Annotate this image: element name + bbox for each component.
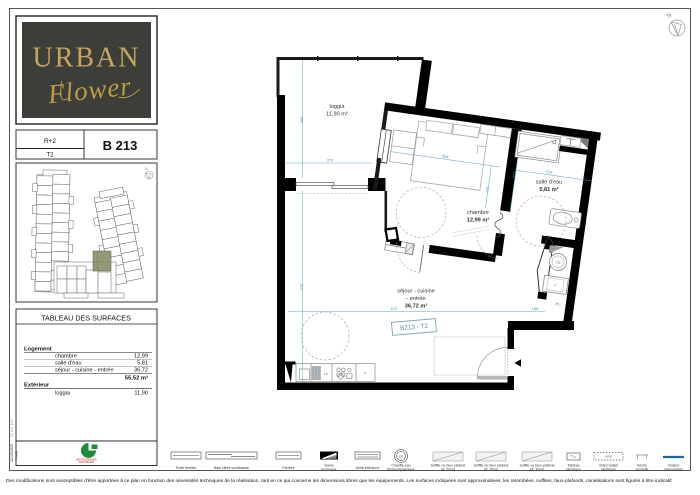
svg-text:salle d'eau: salle d'eau [55, 361, 82, 367]
svg-text:IMMOBILIER: IMMOBILIER [79, 460, 94, 464]
svg-text:11,90: 11,90 [134, 391, 148, 397]
svg-text:LV: LV [324, 371, 329, 376]
svg-text:- entrée: - entrée [406, 296, 425, 302]
svg-text:R+2: R+2 [44, 138, 56, 145]
svg-text:loggia: loggia [55, 391, 71, 397]
svg-text:T2: T2 [46, 153, 54, 159]
svg-text:579: 579 [299, 283, 304, 290]
svg-text:URBAN: URBAN [32, 43, 140, 74]
svg-text:Baie vitrée coulissante: Baie vitrée coulissante [214, 466, 249, 470]
svg-text:11,90 m²: 11,90 m² [326, 112, 348, 118]
svg-text:électrique: électrique [601, 468, 616, 472]
svg-text:176: 176 [485, 186, 490, 192]
svg-text:Ht. 25cm: Ht. 25cm [484, 468, 498, 472]
svg-text:22/10/2025: 22/10/2025 [10, 444, 14, 462]
svg-text:12,99: 12,99 [134, 354, 148, 360]
svg-text:Ht. 20cm: Ht. 20cm [441, 468, 455, 472]
svg-text:Ht. 30cm: Ht. 30cm [530, 468, 544, 472]
svg-text:PL: PL [555, 302, 560, 307]
svg-text:TABLEAU DES SURFACES: TABLEAU DES SURFACES [41, 314, 131, 323]
svg-text:188: 188 [532, 306, 539, 311]
svg-text:370: 370 [327, 158, 334, 163]
svg-text:V.R.E: V.R.E [605, 455, 612, 459]
svg-text:technique: technique [321, 468, 336, 472]
svg-text:55,52 m²: 55,52 m² [125, 375, 148, 382]
svg-text:CE: CE [555, 260, 561, 265]
svg-text:séjour - cuisine: séjour - cuisine [397, 289, 435, 295]
svg-text:CE: CE [399, 454, 403, 458]
svg-text:thermodynamique: thermodynamique [387, 468, 415, 472]
svg-text:serviette: serviette [635, 468, 648, 472]
svg-text:670: 670 [391, 306, 398, 311]
svg-text:Extérieur: Extérieur [24, 383, 50, 389]
svg-text:salle d'eau: salle d'eau [536, 180, 563, 186]
svg-text:210: 210 [545, 169, 553, 175]
svg-text:loggia: loggia [330, 104, 346, 110]
svg-text:électrique: électrique [566, 468, 581, 472]
svg-text:chambre: chambre [55, 354, 77, 360]
svg-text:séjour - cuisine - entrée: séjour - cuisine - entrée [55, 368, 113, 374]
svg-text:démontable: démontable [664, 468, 682, 472]
svg-text:12,99 m²: 12,99 m² [467, 217, 490, 224]
svg-text:Fenêtre: Fenêtre [282, 466, 294, 470]
svg-text:Logement: Logement [24, 347, 52, 353]
svg-text:36,72 m²: 36,72 m² [405, 303, 428, 310]
svg-text:5,81: 5,81 [137, 361, 148, 367]
svg-text:F: F [364, 371, 367, 376]
svg-text:36,72: 36,72 [134, 368, 148, 374]
svg-text:A3 ech. 1/50: A3 ech. 1/50 [10, 419, 14, 437]
svg-text:chambre: chambre [467, 210, 489, 216]
svg-text:N: N [666, 13, 672, 20]
svg-text:Porte fenêtre: Porte fenêtre [176, 466, 196, 470]
svg-text:257: 257 [511, 171, 517, 179]
svg-text:Unité intérieure: Unité intérieure [356, 466, 380, 470]
svg-text:Des modifications sont suscept: Des modifications sont susceptibles d'êt… [6, 478, 672, 484]
svg-text:305: 305 [299, 116, 304, 123]
svg-text:Ind A: Ind A [15, 451, 19, 459]
svg-text:5,81 m²: 5,81 m² [539, 186, 558, 193]
svg-text:B 213: B 213 [103, 138, 138, 153]
